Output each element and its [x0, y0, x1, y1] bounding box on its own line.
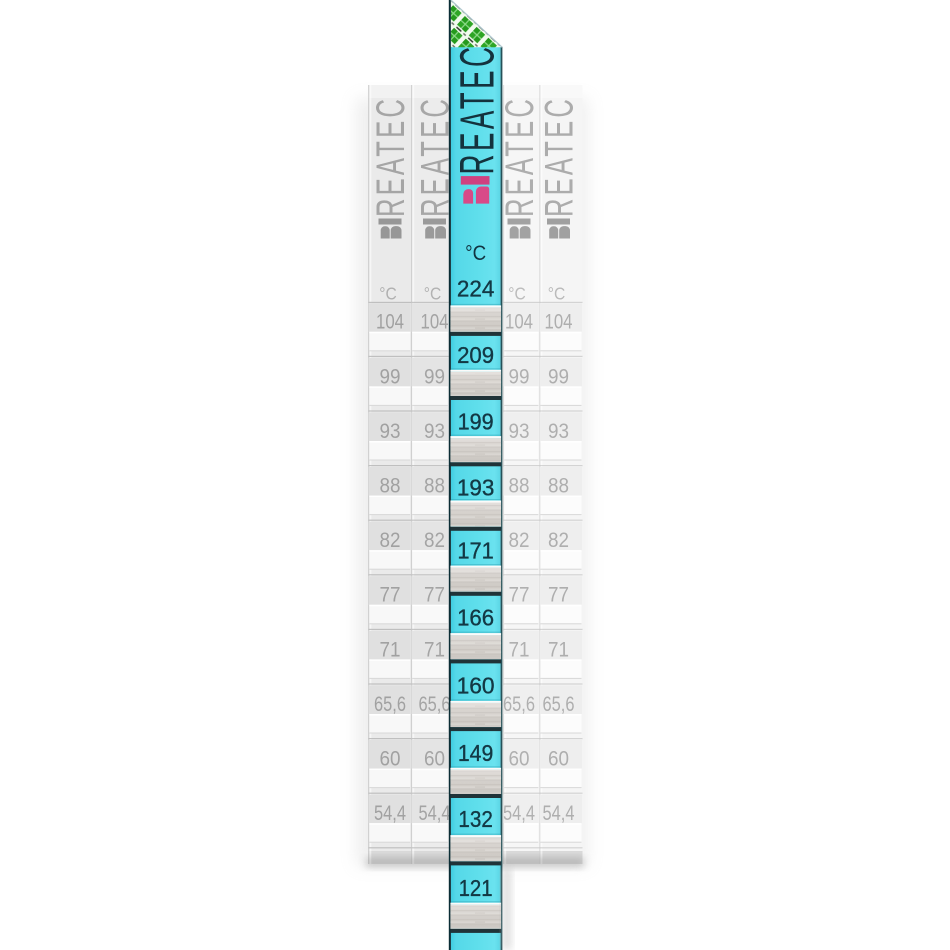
svg-text:104: 104	[376, 311, 404, 334]
svg-text:160: 160	[457, 672, 495, 698]
svg-text:93: 93	[548, 420, 569, 443]
svg-text:88: 88	[424, 475, 445, 498]
svg-text:77: 77	[509, 584, 530, 607]
svg-text:REATEC: REATEC	[498, 96, 542, 217]
svg-text:88: 88	[509, 475, 530, 498]
svg-text:209: 209	[457, 342, 494, 368]
svg-text:REATEC: REATEC	[452, 44, 505, 175]
svg-text:82: 82	[424, 529, 445, 552]
svg-text:71: 71	[509, 638, 530, 661]
svg-text:82: 82	[380, 529, 401, 552]
svg-text:60: 60	[424, 748, 445, 771]
svg-text:°C: °C	[379, 284, 397, 304]
svg-text:71: 71	[380, 638, 401, 661]
svg-text:93: 93	[424, 420, 445, 443]
svg-text:60: 60	[509, 748, 530, 771]
svg-text:99: 99	[424, 365, 445, 388]
svg-text:93: 93	[380, 420, 401, 443]
svg-text:149: 149	[458, 740, 494, 766]
svg-text:193: 193	[457, 475, 495, 501]
svg-text:77: 77	[380, 584, 401, 607]
svg-text:54,4: 54,4	[374, 802, 406, 825]
svg-text:°C: °C	[508, 284, 526, 304]
svg-text:65,6: 65,6	[543, 693, 575, 716]
svg-text:60: 60	[548, 748, 569, 771]
svg-text:99: 99	[548, 365, 569, 388]
svg-text:224: 224	[457, 276, 495, 302]
svg-text:REATEC: REATEC	[537, 96, 581, 217]
svg-text:104: 104	[505, 311, 533, 334]
svg-text:54,4: 54,4	[543, 802, 575, 825]
svg-text:82: 82	[509, 529, 530, 552]
svg-text:199: 199	[458, 408, 494, 434]
svg-text:°C: °C	[465, 241, 486, 265]
svg-text:71: 71	[424, 638, 445, 661]
svg-text:82: 82	[548, 529, 569, 552]
svg-text:121: 121	[459, 875, 493, 901]
svg-text:99: 99	[380, 365, 401, 388]
svg-text:60: 60	[380, 748, 401, 771]
svg-text:°C: °C	[548, 284, 566, 304]
svg-text:166: 166	[457, 605, 494, 631]
svg-text:88: 88	[548, 475, 569, 498]
svg-text:132: 132	[458, 806, 493, 832]
svg-text:93: 93	[509, 420, 530, 443]
svg-text:54,4: 54,4	[419, 802, 451, 825]
svg-text:77: 77	[424, 584, 445, 607]
svg-text:71: 71	[548, 638, 569, 661]
svg-text:65,6: 65,6	[374, 693, 406, 716]
svg-text:171: 171	[457, 537, 494, 563]
svg-text:99: 99	[509, 365, 530, 388]
svg-text:104: 104	[421, 311, 449, 334]
svg-text:77: 77	[548, 584, 569, 607]
svg-text:65,6: 65,6	[503, 693, 535, 716]
svg-text:88: 88	[380, 475, 401, 498]
svg-text:°C: °C	[424, 284, 442, 304]
svg-text:54,4: 54,4	[503, 802, 535, 825]
svg-text:104: 104	[545, 311, 573, 334]
svg-text:REATEC: REATEC	[369, 96, 413, 217]
svg-text:65,6: 65,6	[419, 693, 451, 716]
